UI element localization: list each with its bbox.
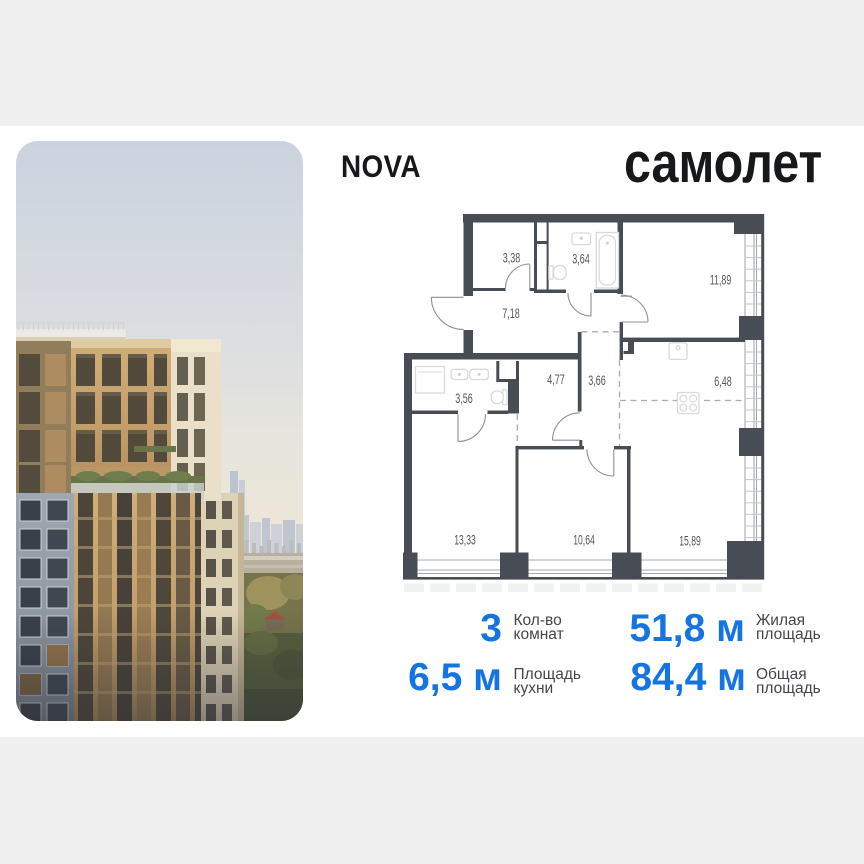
svg-text:13,33: 13,33 [454, 532, 476, 548]
svg-text:6,48: 6,48 [714, 373, 732, 389]
svg-text:3,38: 3,38 [503, 250, 521, 266]
svg-text:7,18: 7,18 [502, 305, 520, 321]
svg-text:3,56: 3,56 [455, 390, 473, 406]
svg-text:15,89: 15,89 [679, 533, 701, 549]
svg-text:11,89: 11,89 [710, 272, 732, 288]
svg-text:3,66: 3,66 [588, 372, 606, 388]
svg-text:3,64: 3,64 [572, 251, 590, 267]
svg-text:10,64: 10,64 [573, 532, 595, 548]
svg-text:4,77: 4,77 [547, 371, 565, 387]
